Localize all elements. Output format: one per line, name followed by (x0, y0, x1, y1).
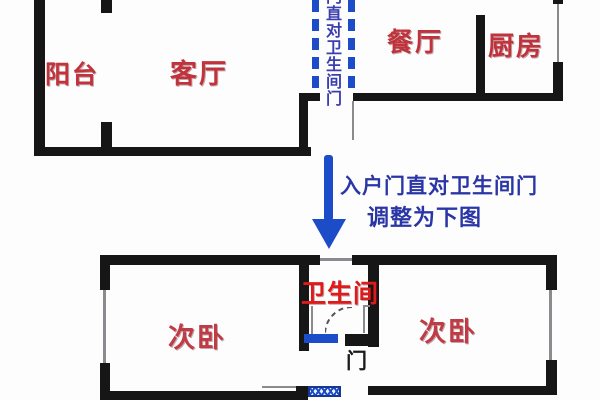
arrow-down-head-icon (312, 219, 346, 249)
arrow-down-icon (324, 155, 333, 221)
wall-left (34, 0, 45, 156)
room-label-dining: 餐厅 (387, 22, 443, 59)
window-crosshatch-symbol (308, 386, 341, 397)
wall-top-left-segment (100, 255, 320, 265)
sightline-dashed-left (312, 0, 319, 93)
wall-balcony-divider-bottom-stub (101, 122, 112, 149)
annotation-line1: 入户门直对卫生间门 (340, 170, 538, 200)
sink-counter-symbol (304, 334, 338, 343)
door-swing-arc-icon (325, 307, 352, 334)
annotation-line2: 调整为下图 (367, 200, 482, 232)
room-label-bathroom: 卫生间 (301, 274, 379, 310)
wall-dining-bottom (353, 93, 563, 101)
wall-bottom (34, 147, 311, 156)
wall-balcony-divider-top-stub (101, 0, 112, 13)
wall-top-right-segment (352, 255, 557, 265)
floor-plan-figure: 门直对卫生间门 阳台 客厅 餐厅 厨房 入户门直对卫生间门 调整为下图 (0, 0, 600, 400)
room-label-living: 客厅 (170, 52, 228, 91)
wall-bottom-left-bedroom (100, 391, 300, 400)
track-line-bottom (262, 386, 300, 388)
wall-kitchen-divider (476, 15, 485, 98)
wall-corridor-left-vertical (299, 98, 308, 150)
corridor-vertical-text: 门直对卫生间门 (320, 0, 342, 113)
window-top-bathroom (320, 258, 352, 261)
room-label-balcony: 阳台 (45, 55, 99, 91)
bathroom-door-leaf-line (352, 101, 354, 140)
door-label: 门 (346, 345, 367, 375)
window-right-wall (557, 4, 559, 62)
room-label-kitchen: 厨房 (488, 26, 544, 63)
fixture-line-left (311, 306, 313, 334)
wall-bottom-right-bedroom (368, 386, 553, 395)
room-label-bedroom-left: 次卧 (168, 316, 226, 355)
wall-left-upper (100, 255, 110, 290)
sightline-dashed-right (348, 0, 355, 88)
wall-right-upper (546, 255, 557, 290)
wall-bottom-junction-block (296, 386, 308, 400)
wall-right-lower (553, 62, 563, 101)
room-label-bedroom-right: 次卧 (419, 310, 477, 349)
window-left-wall (103, 290, 106, 363)
window-right-wall-bottom-plan (549, 290, 552, 360)
